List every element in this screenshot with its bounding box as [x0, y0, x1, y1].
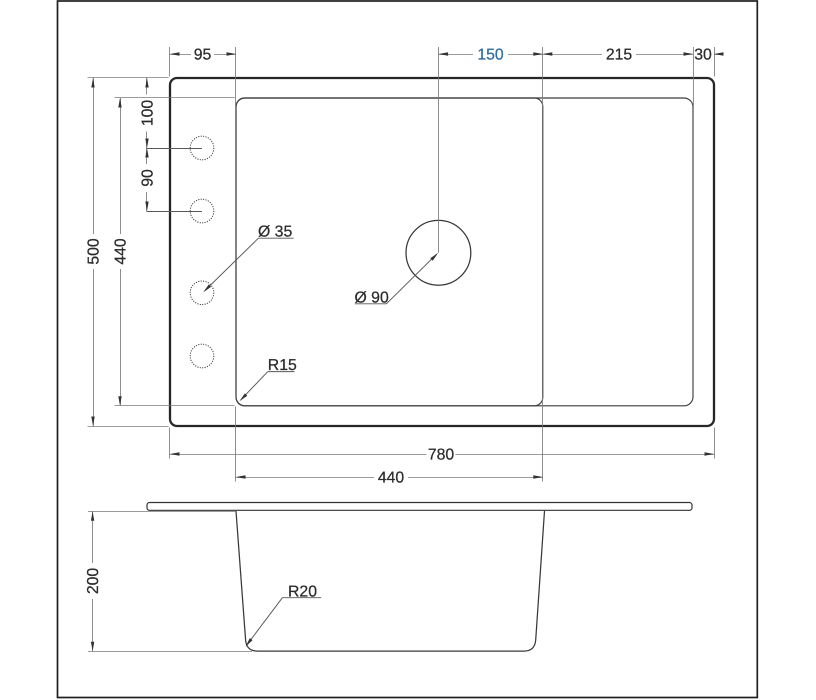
svg-text:215: 215	[606, 47, 633, 64]
svg-text:440: 440	[378, 470, 405, 487]
svg-text:90: 90	[140, 169, 157, 187]
svg-text:30: 30	[694, 47, 712, 64]
svg-text:780: 780	[428, 447, 455, 464]
svg-text:440: 440	[113, 238, 130, 265]
svg-text:95: 95	[194, 47, 212, 64]
svg-text:500: 500	[86, 238, 103, 265]
svg-text:200: 200	[85, 568, 102, 595]
svg-text:100: 100	[140, 100, 157, 127]
svg-text:150: 150	[477, 47, 504, 64]
